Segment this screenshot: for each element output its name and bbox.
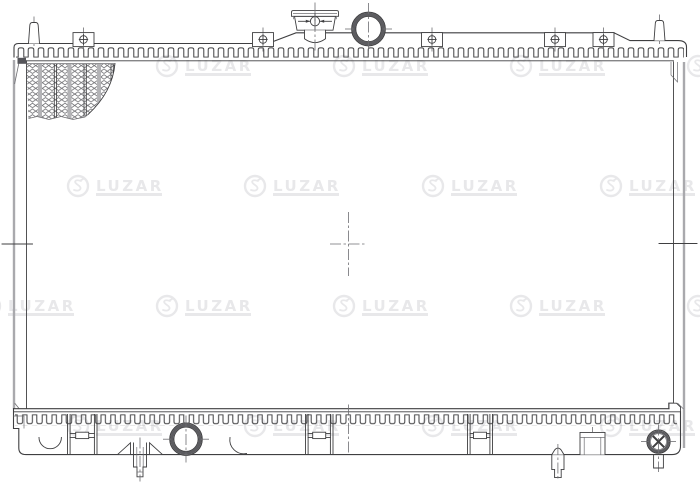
right-plate-foot <box>669 403 684 409</box>
top-tank <box>14 3 687 58</box>
mounting-post-left <box>29 17 40 48</box>
right-plate-hook <box>671 62 678 82</box>
fins-cutaway <box>27 63 117 121</box>
bracket-box <box>580 427 605 455</box>
core <box>2 58 697 448</box>
drain-screw <box>641 425 676 473</box>
mounting-peg <box>552 444 564 481</box>
radiator-technical-drawing-page: LUZAR LUZAR LUZAR LUZAR LUZAR <box>0 0 700 489</box>
bottom-crimp-serration <box>15 414 677 425</box>
filler-neck <box>292 3 339 53</box>
gusset-right <box>150 443 163 455</box>
recess-arc <box>230 438 247 454</box>
drain-fitting <box>118 438 163 482</box>
mounting-post-right <box>654 15 665 45</box>
radiator-line-drawing <box>0 0 700 489</box>
center-mark <box>330 212 367 276</box>
side-plate-left <box>2 58 33 409</box>
top-crimp-serration <box>16 47 684 58</box>
recess-arc <box>39 438 61 449</box>
gusset-left <box>118 443 131 455</box>
left-plate-step <box>18 58 27 64</box>
bottom-tank <box>14 403 681 481</box>
fins-hatch <box>27 63 117 121</box>
side-plate-right <box>659 62 697 448</box>
